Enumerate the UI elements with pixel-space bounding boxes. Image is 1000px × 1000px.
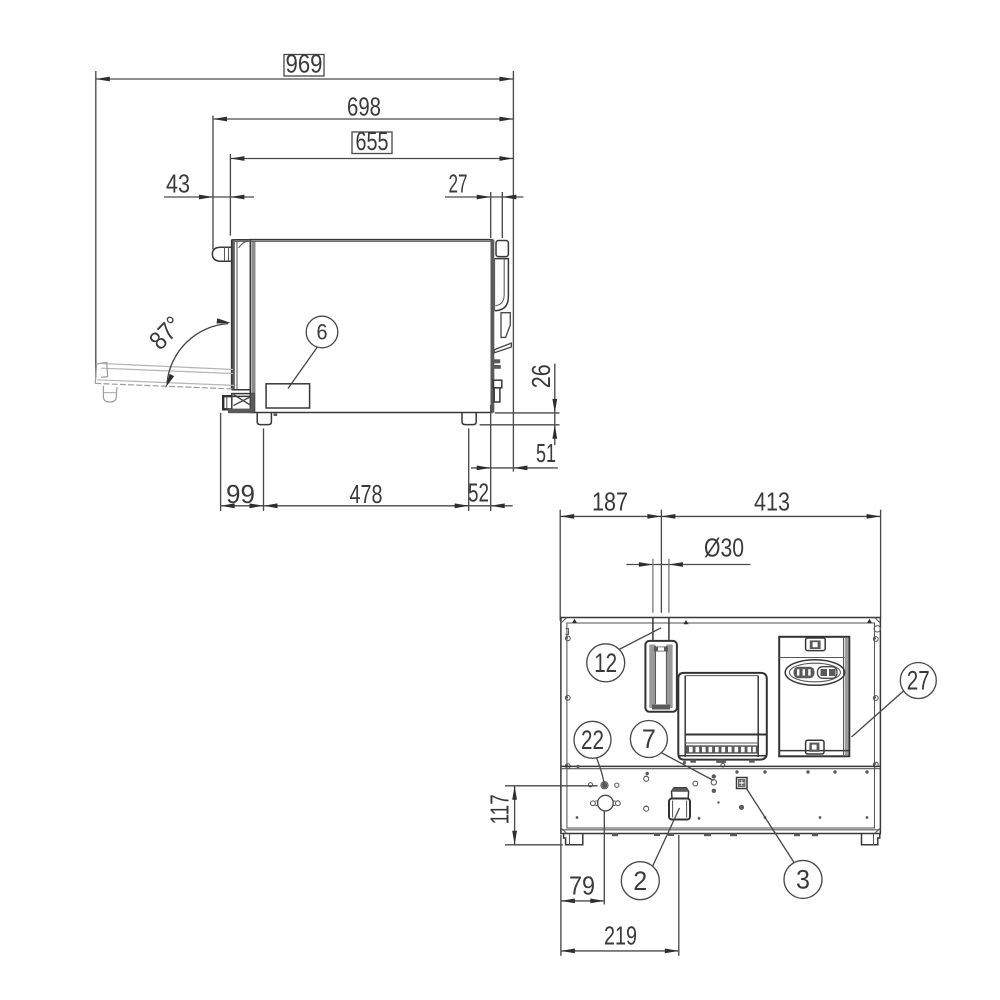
svg-text:27: 27 xyxy=(449,169,468,199)
svg-text:3: 3 xyxy=(796,865,810,895)
svg-text:219: 219 xyxy=(604,921,637,951)
svg-text:413: 413 xyxy=(754,487,790,517)
svg-text:52: 52 xyxy=(468,478,489,508)
svg-text:2: 2 xyxy=(633,866,647,896)
svg-text:478: 478 xyxy=(350,479,383,509)
svg-text:969: 969 xyxy=(286,49,323,79)
svg-text:655: 655 xyxy=(356,126,389,156)
svg-text:26: 26 xyxy=(526,364,556,388)
svg-text:79: 79 xyxy=(569,871,595,901)
svg-text:117: 117 xyxy=(485,794,515,824)
svg-text:27: 27 xyxy=(907,666,930,696)
svg-text:7: 7 xyxy=(642,724,656,754)
svg-text:Ø30: Ø30 xyxy=(704,533,744,563)
svg-text:6: 6 xyxy=(317,320,328,345)
svg-text:51: 51 xyxy=(536,438,556,468)
svg-text:12: 12 xyxy=(594,648,617,678)
svg-text:187: 187 xyxy=(592,487,628,517)
svg-text:99: 99 xyxy=(226,479,255,509)
svg-text:22: 22 xyxy=(581,725,604,755)
svg-text:698: 698 xyxy=(347,92,381,122)
svg-text:43: 43 xyxy=(166,169,190,199)
